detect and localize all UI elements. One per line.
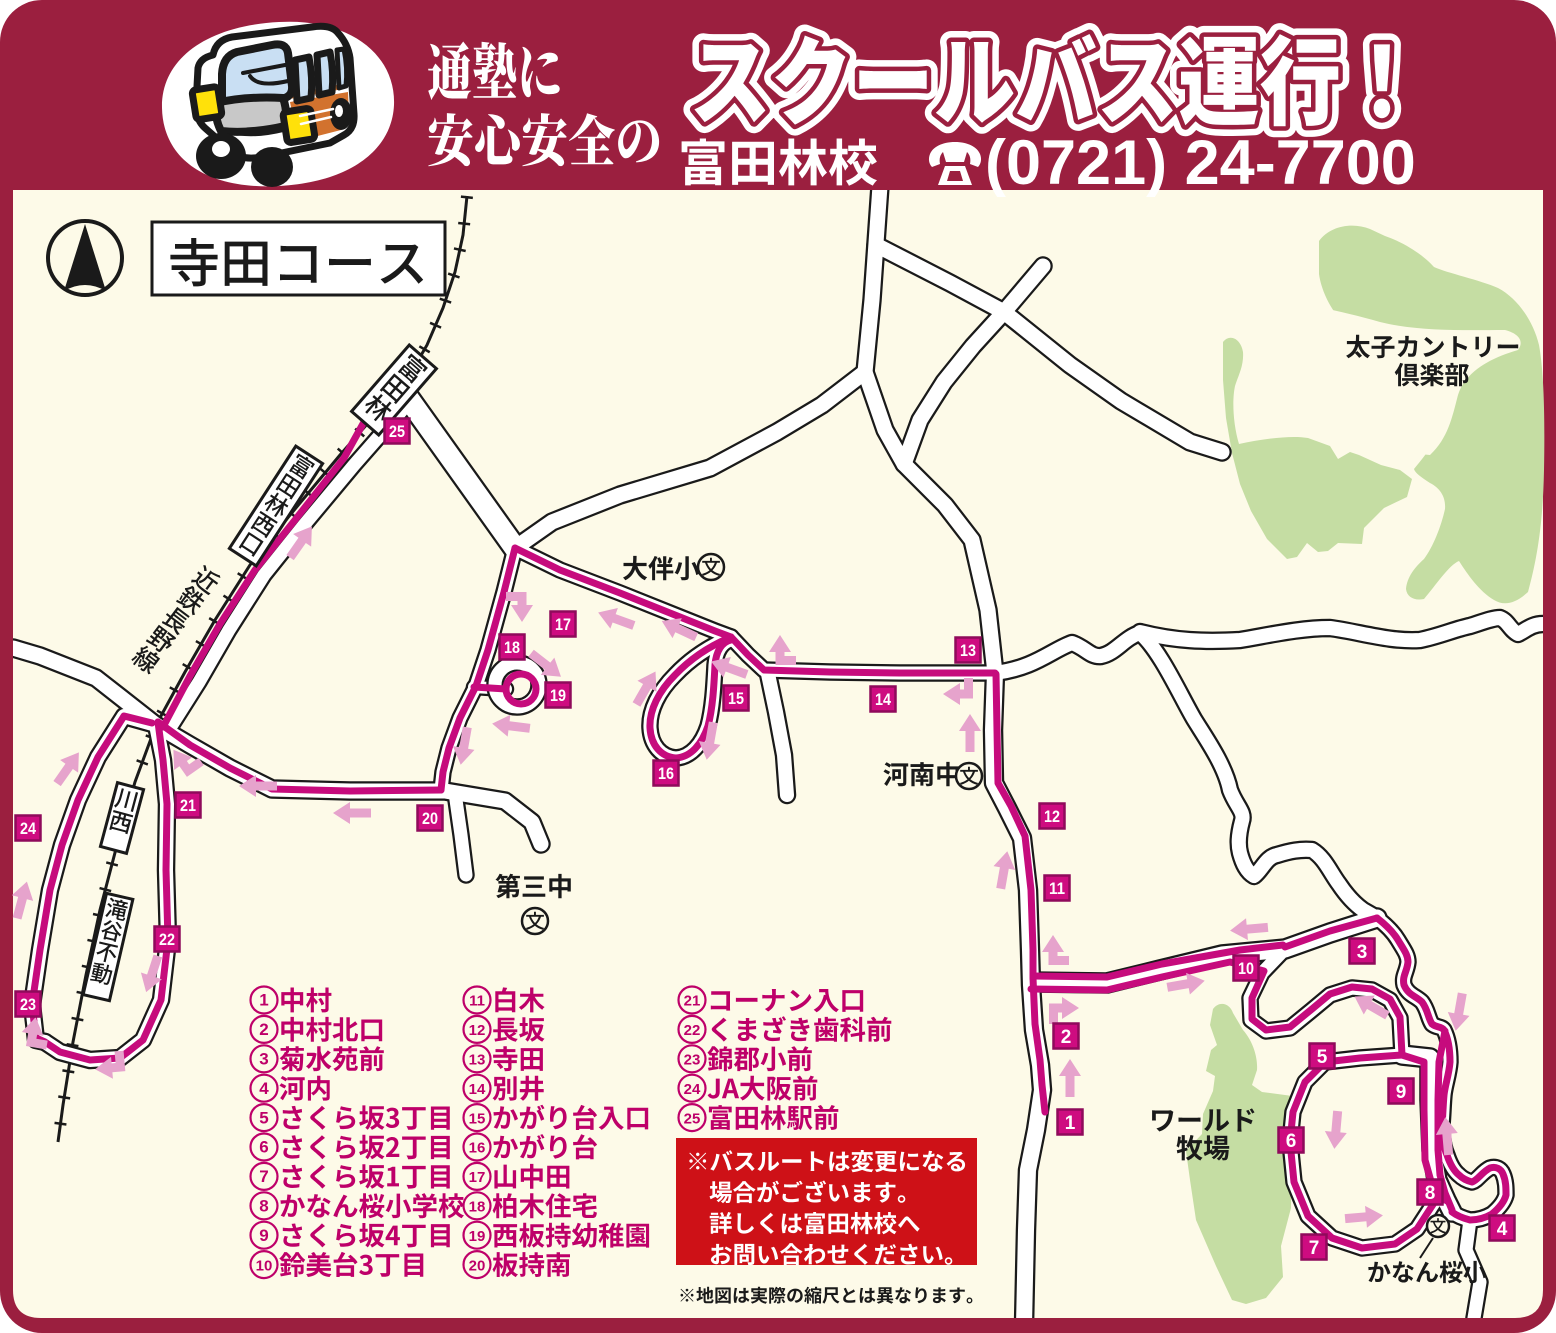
svg-text:18: 18 bbox=[469, 1198, 486, 1215]
svg-text:4: 4 bbox=[1497, 1219, 1508, 1240]
svg-text:8: 8 bbox=[259, 1196, 268, 1215]
svg-text:23: 23 bbox=[20, 995, 36, 1014]
svg-text:21: 21 bbox=[684, 993, 701, 1010]
svg-text:24: 24 bbox=[684, 1081, 701, 1098]
svg-text:4: 4 bbox=[259, 1079, 269, 1098]
svg-text:16: 16 bbox=[658, 764, 674, 783]
svg-text:13: 13 bbox=[960, 641, 976, 660]
svg-text:15: 15 bbox=[728, 689, 744, 708]
svg-text:11: 11 bbox=[1049, 879, 1065, 898]
svg-text:12: 12 bbox=[469, 1022, 486, 1039]
svg-text:3: 3 bbox=[1357, 942, 1368, 963]
svg-text:2: 2 bbox=[1061, 1027, 1072, 1048]
svg-text:17: 17 bbox=[469, 1169, 486, 1186]
svg-text:20: 20 bbox=[469, 1257, 486, 1274]
svg-text:9: 9 bbox=[259, 1226, 268, 1245]
svg-text:9: 9 bbox=[1396, 1082, 1407, 1103]
svg-text:22: 22 bbox=[159, 930, 175, 949]
svg-text:6: 6 bbox=[1286, 1131, 1297, 1152]
svg-text:1: 1 bbox=[259, 991, 268, 1010]
svg-text:7: 7 bbox=[1309, 1238, 1320, 1259]
svg-text:1: 1 bbox=[1065, 1113, 1076, 1134]
svg-text:17: 17 bbox=[555, 615, 571, 634]
svg-text:20: 20 bbox=[422, 809, 438, 828]
svg-text:10: 10 bbox=[256, 1257, 273, 1274]
svg-text:5: 5 bbox=[1317, 1047, 1328, 1068]
svg-text:21: 21 bbox=[180, 796, 196, 815]
svg-text:22: 22 bbox=[684, 1022, 701, 1039]
svg-text:(0721) 24-7700: (0721) 24-7700 bbox=[985, 128, 1416, 198]
svg-text:2: 2 bbox=[259, 1020, 268, 1039]
svg-text:25: 25 bbox=[684, 1110, 701, 1127]
svg-text:5: 5 bbox=[259, 1108, 268, 1127]
svg-text:11: 11 bbox=[469, 993, 485, 1010]
svg-text:13: 13 bbox=[469, 1051, 486, 1068]
svg-text:18: 18 bbox=[504, 638, 520, 657]
svg-text:14: 14 bbox=[469, 1081, 486, 1098]
svg-text:8: 8 bbox=[1425, 1183, 1436, 1204]
svg-text:19: 19 bbox=[469, 1228, 486, 1245]
svg-text:15: 15 bbox=[469, 1110, 486, 1127]
svg-text:12: 12 bbox=[1044, 807, 1060, 826]
svg-text:7: 7 bbox=[259, 1167, 268, 1186]
svg-text:16: 16 bbox=[469, 1140, 486, 1157]
svg-text:24: 24 bbox=[20, 819, 36, 838]
svg-text:3: 3 bbox=[259, 1049, 268, 1068]
svg-text:6: 6 bbox=[259, 1138, 268, 1157]
svg-text:14: 14 bbox=[875, 690, 891, 709]
svg-text:25: 25 bbox=[389, 422, 405, 441]
svg-text:19: 19 bbox=[550, 686, 566, 705]
svg-text:10: 10 bbox=[1238, 959, 1254, 978]
svg-text:23: 23 bbox=[684, 1051, 701, 1068]
